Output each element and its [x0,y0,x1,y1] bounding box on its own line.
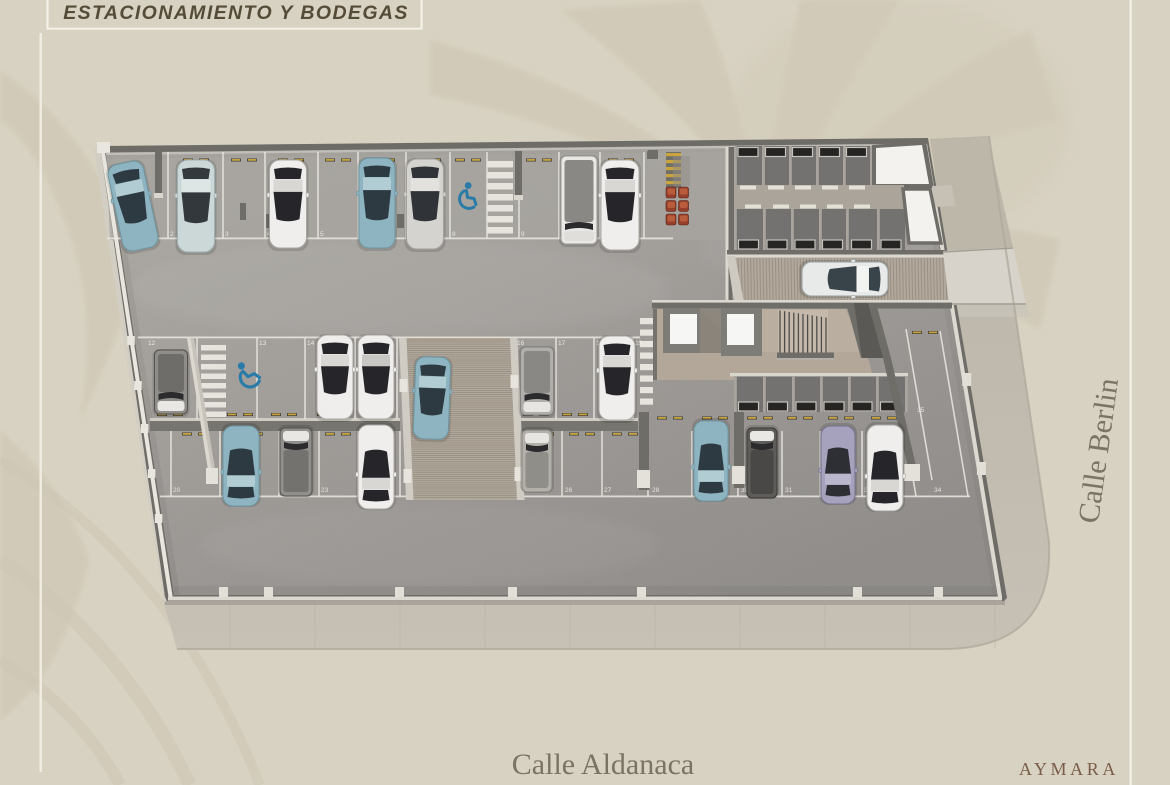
svg-text:17: 17 [558,340,566,347]
svg-text:3: 3 [225,231,229,238]
svg-text:27: 27 [604,487,612,494]
svg-text:28: 28 [652,487,660,494]
svg-text:34: 34 [934,487,942,494]
svg-text:20: 20 [173,487,181,494]
svg-text:ESTACIONAMIENTO Y BODEGAS: ESTACIONAMIENTO Y BODEGAS [63,2,409,24]
svg-text:2: 2 [170,231,174,238]
svg-text:26: 26 [565,487,573,494]
svg-text:8: 8 [452,231,456,238]
svg-text:35: 35 [917,407,925,414]
svg-text:5: 5 [320,231,324,238]
svg-text:AYMARA: AYMARA [1019,759,1119,779]
svg-text:13: 13 [259,340,267,347]
svg-text:23: 23 [321,487,329,494]
svg-text:Calle Aldanaca: Calle Aldanaca [512,748,694,781]
svg-text:31: 31 [785,487,793,494]
svg-text:14: 14 [307,340,315,347]
svg-text:9: 9 [521,231,525,238]
svg-text:16: 16 [517,340,525,347]
svg-text:12: 12 [148,340,156,347]
